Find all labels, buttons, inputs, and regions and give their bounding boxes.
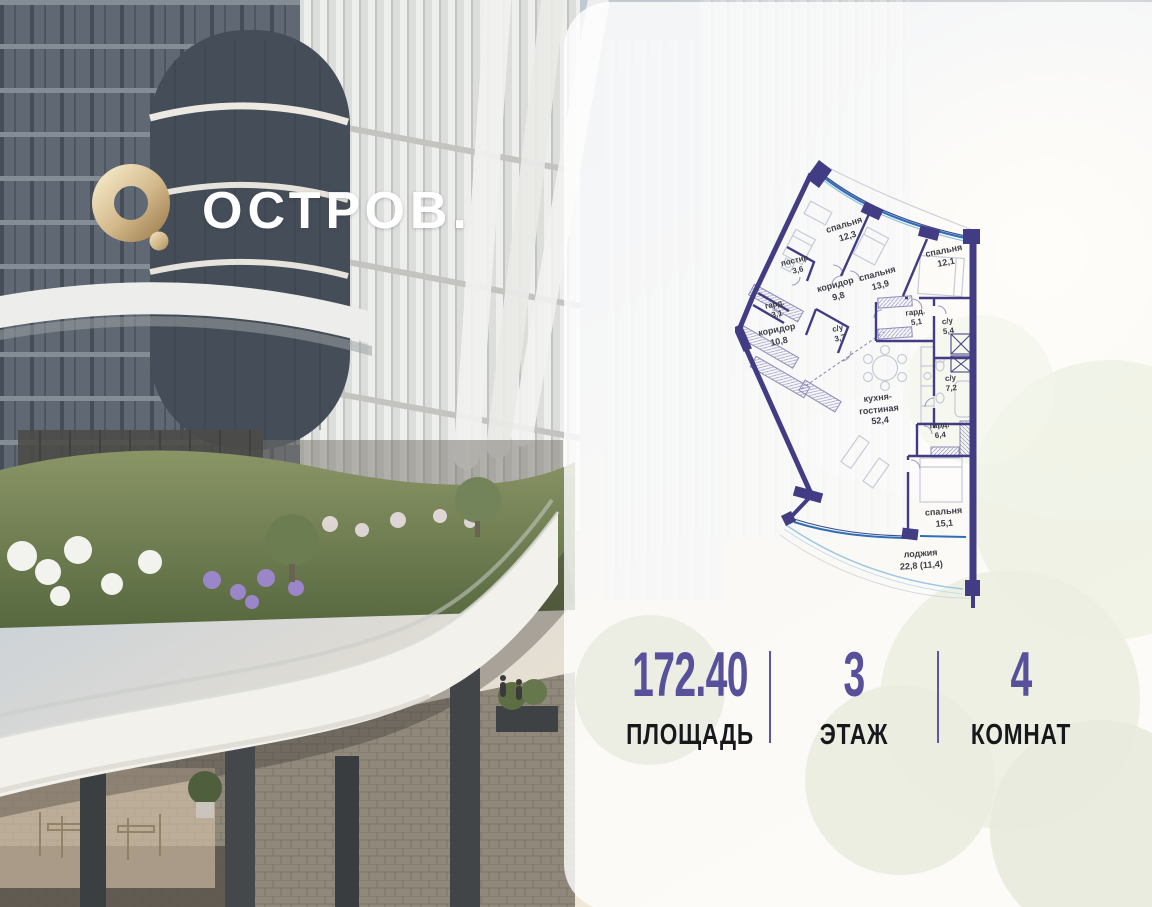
stat-rooms: 4 КОМНАТ [921, 644, 1121, 750]
rooms-label: КОМНАТ [943, 721, 1099, 750]
room-label: с/у5,4 [941, 316, 955, 338]
room-label: с/у3,7 [831, 323, 847, 346]
brand-wordmark: ОСТРОВ. [202, 185, 472, 237]
floor-value: 3 [792, 644, 916, 707]
area-label: ПЛОЩАДЬ [612, 721, 768, 750]
room-label: спальня12,3 [825, 214, 868, 247]
room-label: спальня13,9 [858, 264, 900, 296]
room-label: постир.3,6 [780, 252, 814, 279]
room-label: спальня12,1 [924, 242, 965, 272]
floorplan: спальня12,3спальня13,9спальня12,1постир.… [735, 150, 1007, 615]
room-label: гард.3,1 [764, 298, 788, 323]
room-label: лоджия22,8 (11,4) [899, 547, 944, 573]
floorplan-labels: спальня12,3спальня13,9спальня12,1постир.… [735, 150, 1007, 615]
area-value: 172.40 [628, 644, 752, 707]
rooms-value: 4 [959, 644, 1083, 707]
brand-logo: ОСТРОВ. [88, 158, 508, 268]
room-label: с/у7,2 [945, 373, 958, 395]
room-label: коридор9,8 [816, 275, 858, 307]
ostrov-ring-icon [88, 158, 188, 258]
room-label: гард.5,1 [905, 306, 927, 329]
room-label: кухня-гостиная52,4 [857, 390, 900, 429]
listing-card: спальня12,3спальня13,9спальня12,1постир.… [0, 0, 1152, 907]
room-label: гард.6,4 [929, 420, 951, 442]
room-label: коридор10,8 [757, 321, 798, 351]
room-label: спальня15,1 [925, 505, 964, 531]
floor-label: ЭТАЖ [776, 721, 932, 750]
